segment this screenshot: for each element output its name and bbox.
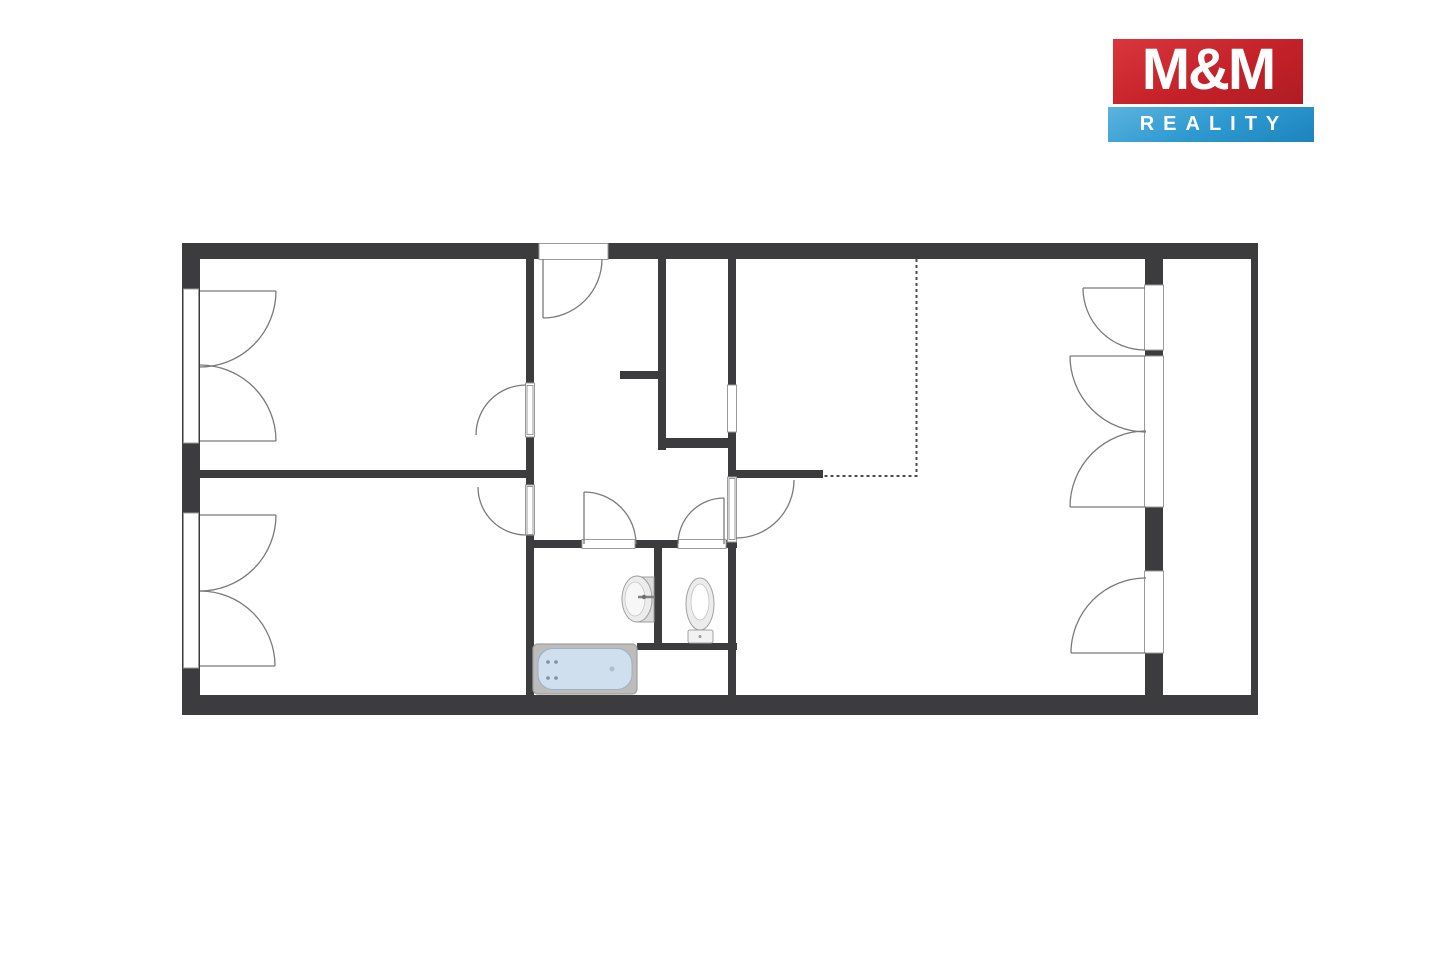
entrance-door-swing (543, 259, 602, 318)
wall-openings (184, 244, 1164, 669)
faucet-hole (546, 676, 550, 680)
floor-plan (0, 0, 1440, 960)
door-leaf (527, 487, 533, 535)
mm-reality-logo: M&M REALITY (1108, 39, 1314, 142)
pass-through-opening (728, 385, 737, 432)
page-background: M&M REALITY (0, 0, 1440, 960)
wall-segment (200, 470, 526, 478)
door-swing (736, 480, 794, 538)
window-swing (200, 291, 276, 367)
wall-segment (1145, 653, 1163, 695)
door-swing (584, 492, 636, 544)
wall-segment (526, 259, 534, 383)
french-windows (200, 291, 276, 666)
faucet-hole (554, 660, 558, 664)
window-swing (200, 515, 276, 591)
balcony-door-opening (1145, 356, 1164, 507)
faucet-hole (554, 676, 558, 680)
window-swing (200, 591, 275, 666)
window-opening (184, 513, 199, 668)
logo-mm-block: M&M (1113, 39, 1303, 104)
door-opening (582, 540, 635, 549)
wall-segment (654, 548, 662, 643)
logo-subtitle: REALITY (1140, 113, 1289, 135)
wall-segment (728, 542, 736, 695)
balcony-door-swing (1071, 578, 1146, 653)
balcony-door-opening (1145, 285, 1164, 350)
door-swings (476, 259, 1146, 653)
wall-segment (1145, 259, 1163, 285)
window-opening (184, 289, 199, 443)
wall-segment (1145, 350, 1163, 356)
balcony-door-swing (1070, 356, 1146, 432)
logo-title: M&M (1142, 37, 1275, 102)
faucet-knob (642, 595, 646, 599)
washbasin-inner (625, 582, 645, 616)
wall-segment (620, 371, 658, 379)
logo-reality-block: REALITY (1108, 107, 1314, 142)
tank-button (699, 635, 702, 638)
bathtub (533, 644, 637, 694)
balcony-door-swing (1070, 431, 1146, 507)
wall-segment (182, 695, 1258, 715)
balcony-door-opening (1145, 571, 1164, 653)
window-swing (200, 365, 276, 441)
wall-segment (728, 259, 736, 385)
wall-segment (182, 243, 1258, 259)
wall-segment (728, 432, 736, 477)
interior-walls (200, 259, 1163, 695)
bathtub-basin (538, 649, 632, 690)
washbasin (622, 576, 655, 622)
faucet-hole (546, 660, 550, 664)
door-swing (476, 385, 526, 435)
wall-segment (526, 540, 582, 548)
wall-segment (1251, 243, 1258, 715)
wall-segment (664, 438, 736, 448)
wall-segment (736, 470, 823, 478)
door-swing (678, 498, 724, 544)
door-leaf (729, 479, 735, 540)
wall-segment (526, 437, 534, 485)
wall-segment (1145, 507, 1163, 571)
door-swing (478, 487, 526, 535)
kitchen-zone-dashed-line (823, 259, 917, 476)
entrance-opening (539, 244, 608, 260)
wall-segment (637, 643, 737, 650)
door-opening (678, 540, 726, 549)
door-leaf (527, 386, 533, 435)
drain (610, 667, 615, 672)
wall-segment (658, 259, 666, 450)
toilet-bowl-inner (691, 584, 709, 620)
balcony-door-swing (1083, 288, 1145, 350)
wall-segment (635, 540, 678, 548)
toilet (686, 578, 714, 643)
zone-boundary (823, 259, 917, 476)
